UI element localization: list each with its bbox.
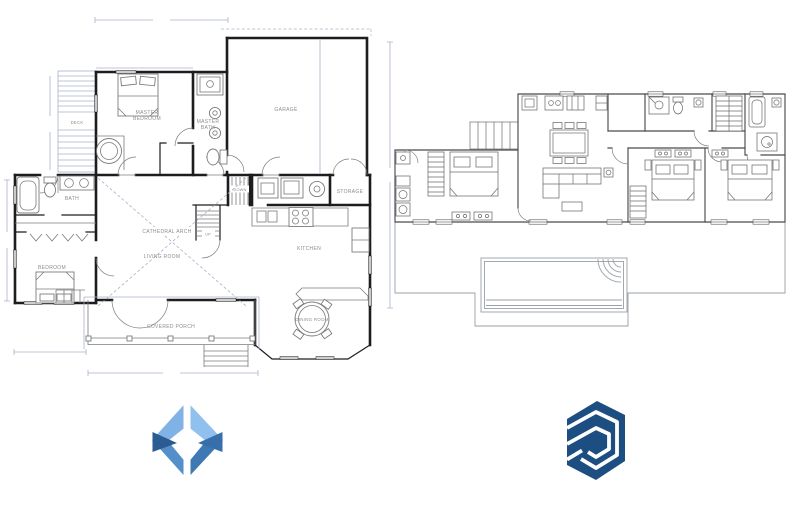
right-bath-1 [649, 97, 703, 114]
right-bath-2 [749, 97, 781, 151]
room-label-deck: DECK [71, 120, 84, 125]
exterior-stairs [470, 122, 518, 149]
stairs-up-label: UP [205, 232, 211, 237]
room-label-dining-room: DINING ROOM [295, 317, 329, 322]
room-label-storage: STORAGE [337, 189, 364, 195]
deck: DECK [58, 71, 96, 172]
smartdraw-logo [152, 405, 223, 475]
right-laundry [396, 152, 410, 216]
laundry-fixtures [258, 178, 325, 198]
stairs-down-label: DOWN [233, 187, 246, 192]
room-label-master-bedroom-2: BEDROOM [133, 116, 161, 122]
canvas: DECK [0, 0, 800, 515]
kitchen-fixtures [252, 208, 369, 301]
right-living [543, 168, 613, 211]
sketchup-logo [567, 401, 625, 480]
right-kitchen [522, 96, 607, 110]
right-dining [550, 123, 588, 164]
room-label-cathedral-arch: CATHEDRAL ARCH [142, 229, 191, 235]
cathedral-arch-lines [98, 178, 246, 306]
room-label-garage: GARAGE [274, 107, 298, 113]
room-label-bedroom: BEDROOM [38, 265, 66, 271]
right-closet-hall [716, 96, 742, 131]
room-labels: MASTER BEDROOM MASTER BATH GARAGE BATH B… [38, 107, 364, 330]
floor-plan-detailed: DECK [4, 17, 393, 376]
patio-pool [395, 222, 785, 326]
room-label-kitchen: KITCHEN [297, 246, 321, 252]
right-bedroom-c [712, 150, 779, 200]
room-label-master-bath-2: BATH [201, 125, 215, 131]
room-label-bath: BATH [65, 196, 79, 202]
stairs: DOWN UP [196, 177, 249, 237]
doors [40, 128, 367, 328]
floor-plans-image: DECK [0, 0, 800, 515]
room-label-covered-porch: COVERED PORCH [147, 324, 195, 330]
closet-symbols [15, 223, 96, 241]
right-bedroom-b [630, 150, 701, 218]
bedroom-furniture [36, 272, 74, 303]
bath-fixtures [17, 176, 94, 213]
floor-plan-furnished [395, 92, 785, 326]
room-label-living-room: LIVING ROOM [144, 254, 181, 260]
master-bedroom-furniture [96, 74, 158, 170]
right-bedroom-a [428, 152, 498, 220]
